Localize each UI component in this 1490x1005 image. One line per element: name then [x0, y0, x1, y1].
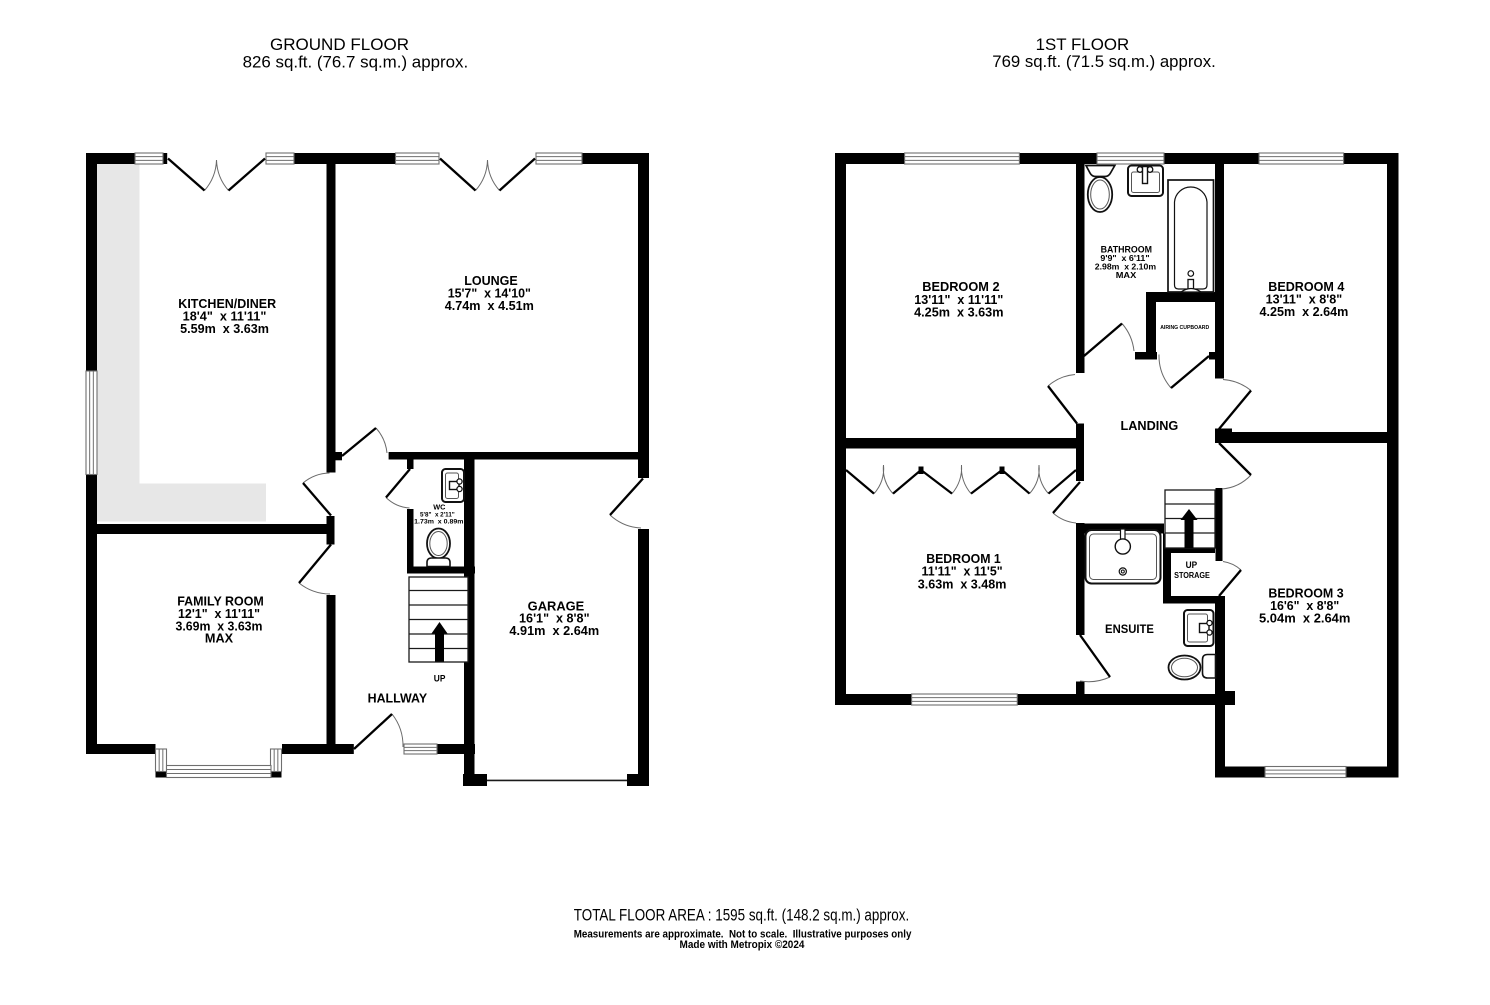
svg-text:3.63m x 3.48m: 3.63m x 3.48m: [918, 577, 1007, 591]
svg-text:4.74m x 4.51m: 4.74m x 4.51m: [445, 299, 534, 313]
svg-text:4.25m x 2.64m: 4.25m x 2.64m: [1260, 305, 1349, 319]
svg-text:STORAGE: STORAGE: [1174, 571, 1210, 580]
svg-text:769 sq.ft. (71.5 sq.m.) approx: 769 sq.ft. (71.5 sq.m.) approx.: [992, 52, 1216, 71]
svg-text:WC: WC: [433, 503, 446, 512]
svg-text:ENSUITE: ENSUITE: [1105, 622, 1154, 636]
svg-text:Made with Metropix ©2024: Made with Metropix ©2024: [680, 939, 805, 951]
svg-text:4.25m x 3.63m: 4.25m x 3.63m: [914, 305, 1003, 319]
svg-text:AIRING CUPBOARD: AIRING CUPBOARD: [1160, 325, 1209, 331]
svg-text:1.73m x 0.89m: 1.73m x 0.89m: [414, 519, 464, 526]
svg-text:UP: UP: [434, 674, 446, 685]
svg-text:UP: UP: [1186, 560, 1198, 570]
svg-text:5.04m x 2.64m: 5.04m x 2.64m: [1259, 611, 1350, 625]
svg-text:TOTAL FLOOR AREA : 1595 sq.ft.: TOTAL FLOOR AREA : 1595 sq.ft. (148.2 sq…: [574, 906, 909, 925]
svg-text:826 sq.ft. (76.7 sq.m.) approx: 826 sq.ft. (76.7 sq.m.) approx.: [243, 53, 469, 72]
svg-text:MAX: MAX: [1116, 270, 1137, 280]
svg-text:LANDING: LANDING: [1121, 419, 1179, 433]
svg-text:MAX: MAX: [205, 632, 234, 646]
svg-text:5.59m x 3.63m: 5.59m x 3.63m: [180, 322, 269, 336]
svg-text:5'8" x 2'11": 5'8" x 2'11": [420, 512, 455, 519]
svg-text:HALLWAY: HALLWAY: [368, 691, 428, 705]
svg-text:4.91m x 2.64m: 4.91m x 2.64m: [509, 624, 599, 638]
svg-text:GROUND FLOOR: GROUND FLOOR: [270, 35, 409, 54]
